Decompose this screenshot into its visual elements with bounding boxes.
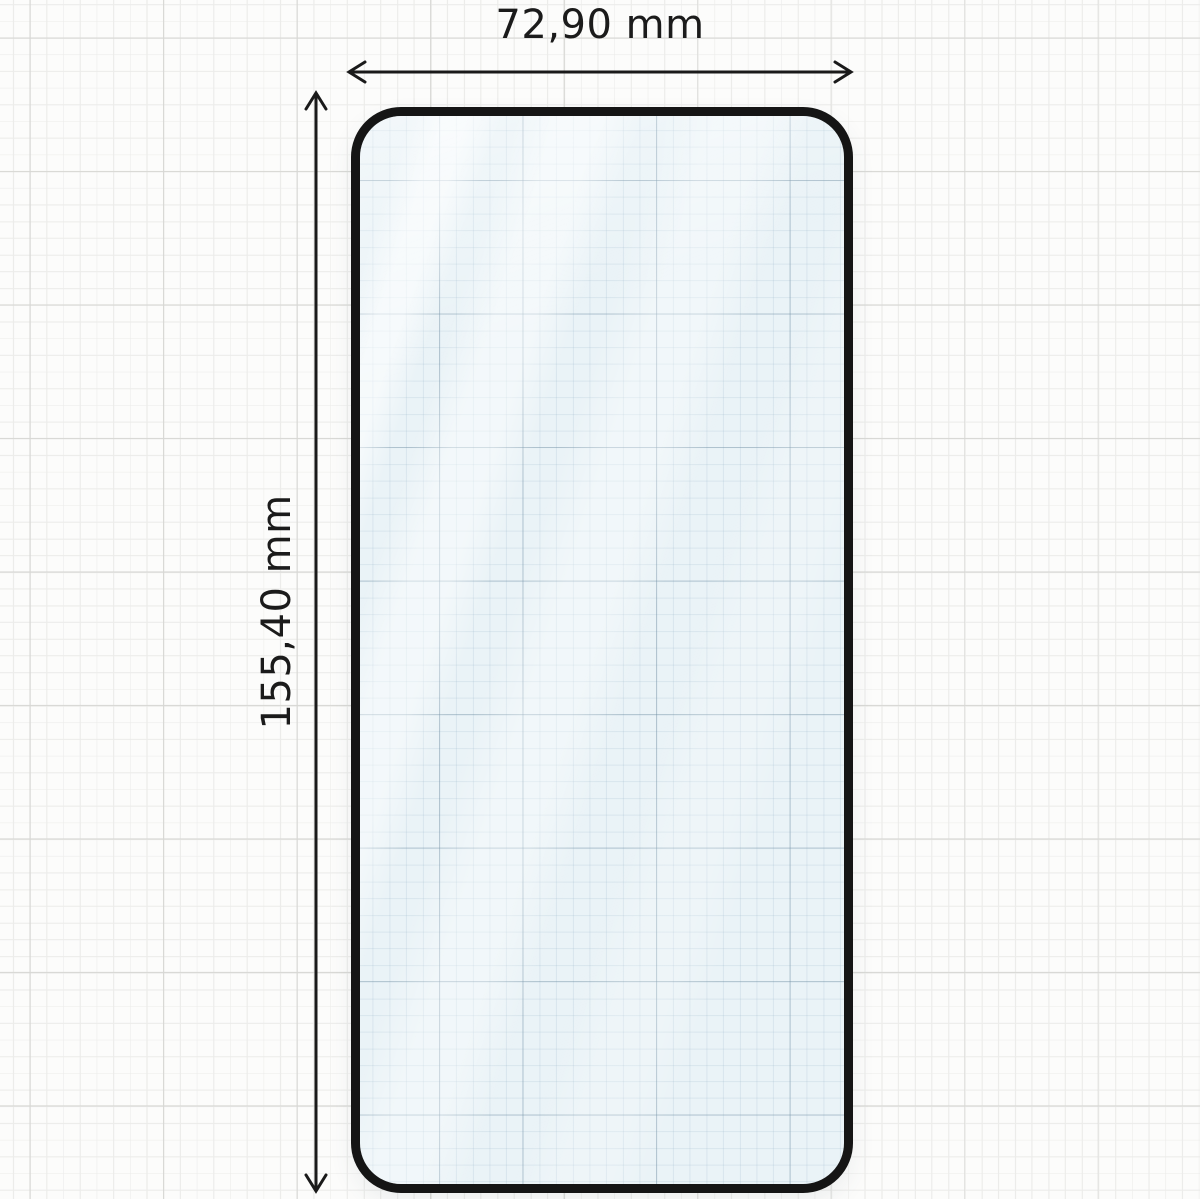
width-dimension-line [344,57,856,87]
graph-paper-canvas: 72,90 mm 155,40 mm [0,0,1200,1199]
height-dimension-label: 155,40 mm [254,494,300,729]
glass-reflection [360,116,844,1184]
screen-protector-glass [351,107,853,1193]
width-dimension-label: 72,90 mm [344,0,856,50]
height-dimension-line [301,88,331,1196]
